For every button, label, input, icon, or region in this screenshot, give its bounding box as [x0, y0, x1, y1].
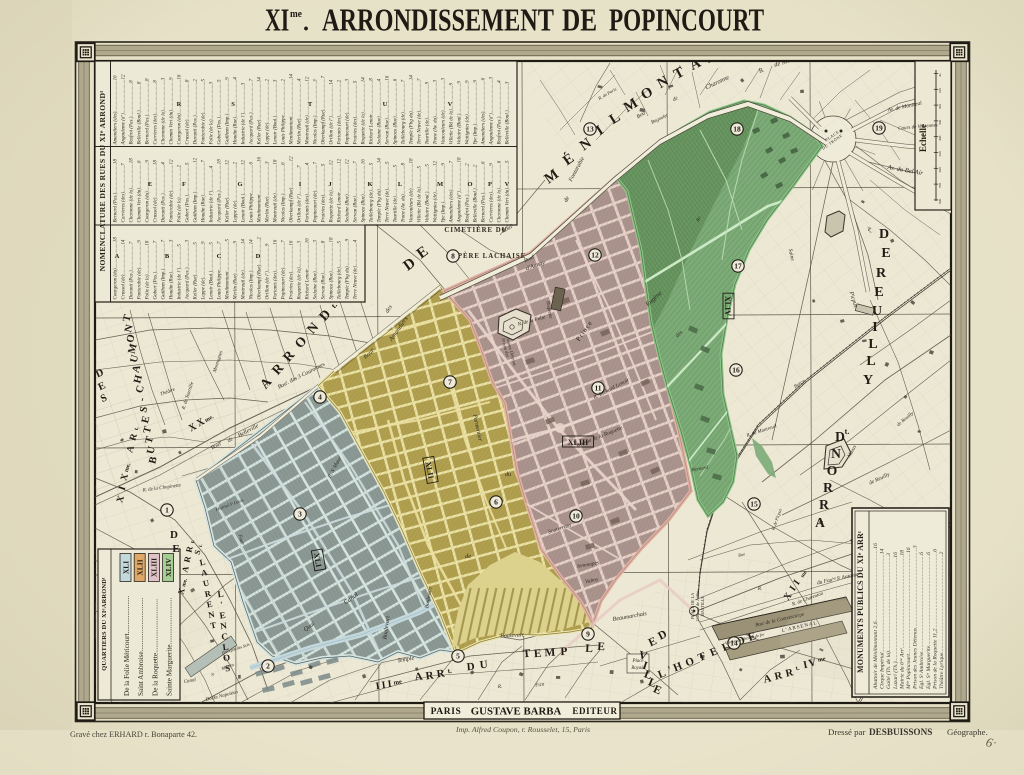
- svg-text:Keller (Rue)..................: Keller (Rue)............................…: [258, 77, 263, 146]
- svg-text:Partants (des)................: Partants (des).....................16: [274, 239, 279, 300]
- svg-text:Carrieres (des)...............: Carrieres (des).........................…: [154, 80, 159, 145]
- svg-text:L: L: [868, 337, 877, 352]
- svg-text:Belleville (Boul.)............: Belleville (Boul.).....................3: [506, 81, 511, 144]
- svg-text:MONUMENTS PUBLICS DU XIe AR: MONUMENTS PUBLICS DU XIe ARRt: [856, 531, 865, 673]
- svg-text:CIMETIÈRE DU: CIMETIÈRE DU: [444, 226, 507, 234]
- svg-text:Trone (Av. du)................: Trone (Av. du).......................8: [402, 163, 407, 223]
- svg-text:Lenoir (Boul.)................: Lenoir (Boul.).....................5: [210, 242, 215, 301]
- svg-text:L: L: [585, 643, 594, 655]
- svg-text:Abattoir de Ménilmontant 2,6..: Abattoir de Ménilmontant 2,6............…: [873, 543, 879, 690]
- svg-text:Mairie du 6ᵐᵉ Arrᵗ............: Mairie du 6ᵐᵉ Arrᵗ......................…: [899, 550, 905, 690]
- svg-text:Wattignies (de)...............: Wattignies (de).........................…: [466, 80, 471, 144]
- svg-text:18: 18: [733, 125, 741, 134]
- svg-text:1: 1: [165, 506, 169, 515]
- svg-text:Imp. Alfred Coupon, r. Roussel: Imp. Alfred Coupon, r. Rousselet, 15, Pa…: [455, 725, 590, 734]
- svg-text:2: 2: [266, 662, 270, 671]
- svg-text:PÈRE LACHAISE: PÈRE LACHAISE: [458, 252, 526, 260]
- svg-text:R: R: [876, 266, 887, 281]
- svg-text:300: 300: [938, 120, 942, 125]
- svg-text:100: 100: [938, 88, 942, 93]
- svg-text:Guilhem (Imp.)................: Guilhem (Imp.).......................12: [194, 157, 199, 222]
- svg-text:R: R: [823, 480, 833, 495]
- svg-text:Tourtille (de)................: Tourtille (de).......................5: [394, 164, 399, 222]
- svg-text:6: 6: [494, 498, 498, 507]
- svg-text:XLIV: XLIV: [723, 296, 732, 316]
- svg-text:Boulevart: Boulevart: [500, 632, 524, 639]
- svg-text:Amandiers (des)...............: Amandiers (des).....................7: [450, 160, 455, 223]
- svg-text:Tourtille (de)................: Tourtille (de)..........................…: [426, 81, 431, 144]
- svg-text:G: G: [237, 181, 242, 188]
- svg-text:Lappe (de)....................: Lappe (de).............................2: [234, 161, 239, 223]
- svg-text:Servan (Rue)..................: Servan (Rue)........................8: [322, 240, 327, 299]
- svg-text:Egl. Sᵗᵉ Marguerite...........: Egl. Sᵗᵉ Marguerite.....................…: [926, 552, 932, 690]
- svg-text:Prison des Jeunes Détenus.....: Prison des Jeunes Détenus...............…: [913, 545, 919, 690]
- svg-text:Vaucouleurs (de)..............: Vaucouleurs (de)........................…: [442, 77, 447, 144]
- svg-text:XI: XI: [265, 2, 289, 37]
- svg-text:Sedaine (Rue).................: Sedaine (Rue)........................12: [346, 159, 351, 223]
- svg-text:Duranti (Pas.)................: Duranti (Pas.)..........................…: [194, 79, 199, 146]
- svg-text:Basfroi (Pas.)................: Basfroi (Pas.)..........................…: [130, 80, 135, 145]
- svg-text:Prairies (des)................: Prairies (des)..........................…: [354, 80, 359, 145]
- svg-text:Crussol (de)..................: Crussol (de)........................14: [122, 239, 127, 299]
- svg-text:Lazari (Th.)..................: Lazari (Th.)............................…: [892, 552, 899, 690]
- svg-text:U: U: [383, 101, 388, 108]
- svg-text:Taillebourg (de)..............: Taillebourg (de)...................5: [338, 240, 343, 299]
- svg-text:Oberkampf (Rue)...............: Oberkampf (Rue)....................2: [258, 237, 263, 300]
- svg-text:10: 10: [572, 512, 580, 521]
- svg-text:Angouleme (d’)................: Angouleme (d’).......................18: [458, 157, 463, 223]
- svg-text:Angouleme (d’)................: Angouleme (d’)..........................…: [122, 74, 127, 145]
- svg-text:XLI: XLI: [121, 561, 130, 574]
- svg-text:t.: t.: [845, 427, 850, 436]
- svg-text:Jacquard (Pas.)...............: Jacquard (Pas.).....................18: [218, 159, 223, 223]
- svg-text:Ype (Imp.)....................: Ype (Imp.).............................9: [442, 163, 447, 223]
- svg-text:Servan (Rue)..................: Servan (Rue)..........................7: [354, 161, 359, 223]
- svg-text:E: E: [874, 285, 883, 300]
- svg-text:Duranti (Pas.)................: Duranti (Pas.).......................4: [162, 162, 167, 224]
- svg-text:F: F: [182, 181, 186, 188]
- svg-text:E: E: [881, 246, 890, 261]
- svg-text:Belleville (Boul.)............: Belleville (Boul.).....................8: [138, 81, 143, 144]
- svg-text:Guilhem (Imp.)................: Guilhem (Imp.).....................7: [162, 239, 167, 299]
- svg-text:S: S: [231, 101, 235, 108]
- svg-text:U: U: [872, 304, 882, 319]
- svg-text:16: 16: [732, 366, 740, 375]
- svg-text:Wattignies (de)...............: Wattignies (de).....................12: [434, 161, 439, 223]
- svg-text:Guilhem (Imp.)................: Guilhem (Imp.)..........................…: [226, 77, 231, 145]
- svg-text:GUSTAVE BARBA: GUSTAVE BARBA: [471, 706, 562, 718]
- svg-text:Menilmontant..................: Menilmontant..........................16: [258, 156, 263, 223]
- svg-text:Lenoir (Boul.)................: Lenoir (Boul.)..........................…: [274, 79, 279, 145]
- svg-text:P: P: [560, 646, 567, 658]
- svg-text:Ype (Imp.)....................: Ype (Imp.)..............................…: [474, 80, 479, 145]
- svg-text:QUARTIERS DU XIeARRONDt: QUARTIERS DU XIeARRONDt: [101, 577, 109, 671]
- svg-text:Houdin (Rue)..................: Houdin (Rue)............................…: [234, 77, 239, 146]
- svg-text:Y: Y: [863, 373, 873, 388]
- svg-text:Richard Lenoir................: Richard Lenoir.....................16: [306, 238, 311, 301]
- svg-text:Industrie (de l’).............: Industrie (de l’)..................4: [210, 165, 215, 223]
- svg-text:E: E: [597, 641, 606, 654]
- svg-text:3: 3: [298, 510, 302, 519]
- svg-text:Lappe (de)....................: Lappe (de)..............................…: [266, 78, 271, 145]
- svg-text:Saint Ambroise...............: Saint Ambroise..........................…: [137, 597, 145, 696]
- svg-text:Partants (des)................: Partants (des)..........................…: [338, 79, 343, 145]
- svg-text:Sedaine (Rue).................: Sedaine (Rue)...........................…: [378, 78, 383, 144]
- svg-text:XLIII: XLIII: [150, 558, 159, 577]
- svg-text:R: R: [819, 497, 829, 512]
- svg-text:13: 13: [586, 125, 594, 134]
- svg-text:Sainte Marguerite............: Sainte Marguerite.......................…: [166, 598, 174, 696]
- svg-text:Courgeron (du)................: Courgeron (du).......................9: [146, 160, 151, 223]
- svg-text:B: B: [165, 253, 170, 260]
- svg-text:Egl. Sᵗ Ambroise..............: Egl. Sᵗ Ambroise........................…: [919, 552, 925, 690]
- svg-text:me: me: [393, 678, 402, 686]
- svg-text:Courgeron (du)................: Courgeron (du)..........................…: [178, 74, 183, 144]
- svg-text:Roquette (de la)..............: Roquette (de la)...................3: [298, 241, 303, 301]
- svg-text:Menilmontant..................: Menilmontant........................5: [226, 238, 231, 300]
- svg-text:Charonne (de la)..............: Charonne (de la)........................…: [162, 77, 167, 144]
- svg-text:Géographe.: Géographe.: [947, 727, 988, 737]
- svg-text:Courgeron (du)................: Courgeron (du).....................18: [114, 237, 119, 300]
- svg-text:Houdin (Rue)..................: Houdin (Rue)..........................7: [202, 160, 207, 224]
- svg-text:Montreuil (de)................: Montreuil (de).....................14: [242, 239, 247, 301]
- svg-text:K: K: [367, 181, 372, 188]
- svg-text:Voltaire (Boul.)..............: Voltaire (Boul.)....................5: [426, 164, 431, 223]
- svg-text:Angouleme (d’)................: Angouleme (d’)..........................…: [490, 77, 495, 146]
- svg-text:12: 12: [591, 251, 599, 260]
- svg-text:Basfroi (Pas.)................: Basfroi (Pas.).......................2: [466, 163, 471, 223]
- svg-text:Orillon (de l’)...............: Orillon (de l’)....................9: [266, 243, 271, 299]
- svg-text:Mᵈᵉ Popincourt................: Mᵈᵉ Popincourt..........................…: [906, 547, 912, 690]
- svg-text:Chemin Vert (du)..............: Chemin Vert (du)....................5: [506, 160, 511, 222]
- svg-text:600: 600: [938, 167, 942, 172]
- svg-text:Lenoir (Boul.)................: Lenoir (Boul.).......................12: [242, 160, 247, 224]
- svg-text:Villette (Bd de la)...........: Villette (Bd de la)...................9: [450, 82, 455, 144]
- svg-text:4: 4: [318, 393, 322, 402]
- svg-text:Gobert (Pas.).................: Gobert (Pas.).......................7: [154, 240, 159, 299]
- svg-text:Louis Philippe................: Louis Philippe..........................…: [282, 78, 287, 145]
- svg-text:Roquette (de la)..............: Roquette (de la)........................…: [362, 77, 367, 146]
- svg-text:9: 9: [586, 630, 590, 639]
- svg-text:DESBUISSONS: DESBUISSONS: [869, 727, 932, 737]
- svg-text:M: M: [544, 647, 556, 660]
- svg-text:Terre Neuve (de)..............: Terre Neuve (de)...................4: [354, 239, 359, 299]
- svg-text:Gobert (Pas.).................: Gobert (Pas.)...........................…: [218, 79, 223, 144]
- svg-text:O: O: [222, 652, 230, 663]
- svg-text:Keller (Rue)..................: Keller (Rue)..........................12: [226, 160, 231, 224]
- svg-text:Cirque Impérial...............: Cirque Impérial.........................…: [880, 548, 886, 689]
- svg-text:Bernard (Pas.)................: Bernard (Pas.).......................6: [482, 161, 487, 223]
- svg-text:Orillon (de l’)...............: Orillon (de l’).........................…: [330, 79, 335, 144]
- svg-text:Villette (Bd de la)...........: Villette (Bd de la)...............5: [418, 165, 423, 222]
- svg-text:C: C: [221, 631, 229, 642]
- svg-text:Folie (de la).................: Folie (de la)...........................…: [210, 82, 215, 146]
- svg-text:.: .: [303, 11, 309, 37]
- svg-text:Taillebourg (de)..............: Taillebourg (de)........................…: [402, 79, 407, 144]
- svg-text:E: E: [148, 181, 152, 188]
- svg-text:BASTILLE: BASTILLE: [700, 596, 705, 616]
- svg-text:POPINCOURT: POPINCOURT: [609, 3, 764, 38]
- svg-text:L: L: [398, 181, 403, 188]
- svg-text:Nicolas (Imp.)................: Nicolas (Imp.)..........................…: [314, 79, 319, 146]
- svg-text:D: D: [256, 253, 261, 260]
- svg-text:Keller (Rue)..................: Keller (Rue)........................5: [194, 242, 199, 301]
- svg-text:Houdin (Rue)..................: Houdin (Rue)........................3: [170, 239, 175, 300]
- svg-text:Nicolas (Imp.)................: Nicolas (Imp.).....................14: [250, 239, 255, 301]
- svg-text:U: U: [479, 659, 488, 672]
- svg-text:Dressé par: Dressé par: [828, 727, 865, 737]
- svg-text:Montreuil (de)................: Montreuil (de)..........................…: [306, 76, 311, 145]
- svg-text:Merlin (Rue)..................: Merlin (Rue)........................9: [234, 241, 239, 301]
- svg-text:D: D: [170, 529, 178, 541]
- svg-text:Trone (Av. du)................: Trone (Av. du)..........................…: [434, 80, 439, 145]
- svg-text:19: 19: [875, 124, 883, 133]
- svg-text:Temple (Fbg du)...............: Temple (Fbg du)....................9: [346, 238, 351, 299]
- svg-text:Partants (des)................: Partants (des).......................4: [306, 162, 311, 223]
- svg-text:Bernard (Pas.)................: Bernard (Pas.)..........................…: [146, 78, 151, 145]
- svg-text:E: E: [534, 648, 543, 661]
- svg-text:De la Roquette...............: De la Roquette..........................…: [151, 599, 159, 696]
- svg-text:Temple (Fbg du)...............: Temple (Fbg du).....................14: [378, 158, 383, 223]
- svg-text:DE: DE: [562, 3, 597, 39]
- svg-text:Gravé chez ERHARD r. Bonaparte: Gravé chez ERHARD r. Bonaparte 42.: [70, 730, 197, 739]
- svg-text:M: M: [437, 181, 443, 188]
- svg-text:T: T: [522, 648, 531, 661]
- svg-text:Louis Philippe................: Louis Philippe.....................7: [218, 241, 223, 301]
- svg-text:Carrieres (des)...............: Carrieres (des).....................7: [122, 163, 127, 223]
- svg-text:Popincourt (de)...............: Popincourt (de).........................…: [346, 78, 351, 145]
- svg-text:Merlin (Rue)..................: Merlin (Rue)..........................3: [266, 161, 271, 223]
- svg-text:Richard Lenoir................: Richard Lenoir.......................12: [338, 158, 343, 223]
- svg-text:Popincourt (de)...............: Popincourt (de).....................7: [314, 161, 319, 223]
- svg-text:Gaité (Th. de la).............: Gaité (Th. de la).......................…: [885, 553, 892, 689]
- svg-text:Bernard (Pas.)................: Bernard (Pas.).......................18: [114, 158, 119, 222]
- svg-text:PARIS: PARIS: [431, 707, 462, 717]
- svg-text:Chemin Vert (du)..............: Chemin Vert (du)....................6: [138, 160, 143, 222]
- svg-text:Charonne (de la)..............: Charonne (de la)....................6: [498, 160, 503, 222]
- svg-text:500: 500: [938, 151, 942, 156]
- svg-text:400: 400: [938, 135, 942, 140]
- svg-text:Crussol (de)..................: Crussol (de)..........................18: [154, 160, 159, 223]
- svg-text:Louis Philippe................: Louis Philippe.......................6: [250, 161, 255, 223]
- svg-text:EDITEUR: EDITEUR: [572, 706, 617, 716]
- svg-text:Roquette (de la)..............: Roquette (de la)....................12: [330, 160, 335, 224]
- svg-text:Fontarabie (de)...............: Fontarabie (de).........................…: [202, 78, 207, 145]
- svg-text:P: P: [488, 181, 492, 188]
- svg-text:700: 700: [938, 183, 942, 188]
- svg-text:E: E: [172, 543, 179, 555]
- svg-text:A: A: [815, 515, 825, 530]
- svg-text:Temple (Fbg du)...............: Temple (Fbg du).........................…: [410, 75, 415, 145]
- svg-text:De la Folie Méricourt........: De la Folie Méricourt...................…: [123, 596, 131, 696]
- svg-text:15: 15: [750, 500, 758, 509]
- svg-text:Spinoza (Rue).................: Spinoza (Rue).......................18: [330, 237, 335, 299]
- svg-text:Jacquard (Pas.)...............: Jacquard (Pas.).........................…: [250, 78, 255, 144]
- svg-text:Sedaine (Rue).................: Sedaine (Rue).......................3: [314, 240, 319, 300]
- svg-text:R.: R.: [497, 685, 502, 690]
- svg-text:D: D: [879, 227, 889, 242]
- svg-text:7: 7: [448, 378, 452, 387]
- svg-text:Basfroi (Pas.)................: Basfroi (Pas.)..........................…: [498, 80, 503, 145]
- svg-text:Popincourt (de)...............: Popincourt (de)....................7: [282, 240, 287, 301]
- svg-text:Terre Neuve (de)..............: Terre Neuve (de)........................…: [418, 78, 423, 145]
- svg-text:Belleville (Boul.)............: Belleville (Boul.).................2: [474, 164, 479, 222]
- svg-text:A: A: [414, 671, 424, 684]
- svg-text:Crussol (de)..................: Crussol (de)............................…: [186, 79, 191, 144]
- svg-text:Industrie (de l’).............: Industrie (de l’).................5: [178, 244, 183, 301]
- svg-text:Charonne (de la)..............: Charonne (de la)....................18: [130, 158, 135, 223]
- svg-text:de: de: [938, 73, 942, 77]
- svg-text:Place: Place: [632, 659, 645, 664]
- svg-text:200: 200: [938, 104, 942, 109]
- svg-text:Spinoza (Rue).................: Spinoza (Rue)........................16: [362, 159, 367, 223]
- svg-text:Fontarabie (de)...............: Fontarabie (de).....................12: [170, 159, 175, 224]
- svg-text:Gobert (Pas.).................: Gobert (Pas.)........................5: [186, 162, 191, 222]
- svg-text:8: 8: [451, 252, 455, 261]
- svg-text:Taillebourg (de)..............: Taillebourg (de)....................5: [370, 162, 375, 222]
- svg-text:800: 800: [938, 199, 942, 204]
- svg-text:Montreuil (de)................: Montreuil (de).......................18: [274, 159, 279, 223]
- svg-text:NOMENCLATURE DES RUES DU X: NOMENCLATURE DES RUES DU XIe ARRONDt: [98, 91, 107, 272]
- svg-text:Terre Neuve (de)..............: Terre Neuve (de)....................5: [386, 161, 391, 223]
- svg-text:V: V: [505, 181, 510, 188]
- svg-text:T: T: [308, 101, 313, 108]
- svg-text:A: A: [115, 253, 120, 260]
- svg-text:D: D: [466, 661, 475, 674]
- svg-text:L: L: [866, 354, 875, 369]
- svg-text:Lappe (de)....................: Lappe (de)...........................9: [202, 241, 207, 301]
- svg-text:Folie (de la).................: Folie (de la)........................2: [178, 165, 183, 224]
- svg-text:du: du: [505, 472, 511, 478]
- svg-text:me: me: [290, 8, 302, 20]
- svg-text:Fontarabie (de)...............: Fontarabie (de)....................9: [138, 240, 143, 301]
- svg-text:ARRONDISSEMENT: ARRONDISSEMENT: [322, 3, 554, 38]
- svg-text:Royale: Royale: [630, 666, 645, 671]
- svg-text:Carrieres (des)...............: Carrieres (des).....................9: [490, 163, 495, 223]
- svg-text:Amandiers (des)...............: Amandiers (des).........................…: [114, 75, 119, 146]
- svg-text:5: 5: [456, 652, 460, 661]
- svg-text:Merlin (Rue)..................: Merlin (Rue)............................…: [298, 78, 303, 145]
- svg-text:Oberkampf (Rue)...............: Oberkampf (Rue).........................…: [322, 75, 327, 144]
- svg-text:XLII: XLII: [136, 559, 145, 575]
- svg-text:Vaucouleurs (de)..............: Vaucouleurs (de)....................18: [410, 158, 415, 223]
- svg-text:Prairies (des)................: Prairies (des).....................16: [290, 240, 295, 300]
- svg-text:R.: R.: [757, 587, 762, 592]
- svg-text:Voltaire (Boul.)..............: Voltaire (Boul.)........................…: [458, 81, 463, 145]
- svg-text:D: D: [835, 429, 845, 444]
- svg-text:Folie (de la).................: Folie (de la).......................18: [146, 240, 151, 300]
- svg-text:Oberkampf (Rue)...............: Oberkampf (Rue).....................12: [290, 156, 295, 223]
- svg-text:Industrie (de l’).............: Industrie (de l’)......................3: [242, 82, 247, 145]
- svg-text:Nicolas (Imp.)................: Nicolas (Imp.).......................6: [282, 162, 287, 224]
- svg-text:de: de: [465, 553, 471, 560]
- svg-text:Jacquard (Pas.)...............: Jacquard (Pas.)....................3: [186, 239, 191, 299]
- svg-text:R: R: [177, 101, 182, 108]
- svg-text:Orillon (de l’)...............: Orillon (de l’).....................7: [298, 165, 303, 223]
- svg-text:Spinoza (Rue).................: Spinoza (Rue)...........................…: [394, 78, 399, 144]
- svg-text:I: I: [872, 320, 877, 335]
- svg-text:Théâtre Lyrique...............: Théâtre Lyrique.........................…: [939, 551, 945, 689]
- svg-text:O: O: [467, 181, 472, 188]
- svg-text:XLIV: XLIV: [164, 558, 173, 577]
- svg-text:Chemin Vert (du)..............: Chemin Vert (du)........................…: [170, 77, 175, 144]
- svg-text:Servan (Rue)..................: Servan (Rue)............................…: [386, 75, 391, 144]
- svg-text:Prairies (des)................: Prairies (des).......................5: [322, 163, 327, 223]
- svg-text:N: N: [831, 446, 841, 461]
- svg-text:Amandiers (des)...............: Amandiers (des).........................…: [482, 77, 487, 145]
- svg-text:Prison de la Roquette 11,2....: Prison de la Roquette 11,2..............…: [932, 549, 938, 690]
- svg-text:Duranti (Pas.)................: Duranti (Pas.).....................7: [130, 241, 135, 300]
- svg-text:C: C: [217, 253, 222, 260]
- svg-text:V: V: [448, 101, 453, 108]
- svg-text:17: 17: [734, 262, 742, 271]
- svg-text:Menilmontant..................: Menilmontant............................…: [290, 73, 295, 145]
- svg-text:Richard Lenoir................: Richard Lenoir..........................…: [370, 78, 375, 146]
- svg-text:O: O: [827, 463, 838, 478]
